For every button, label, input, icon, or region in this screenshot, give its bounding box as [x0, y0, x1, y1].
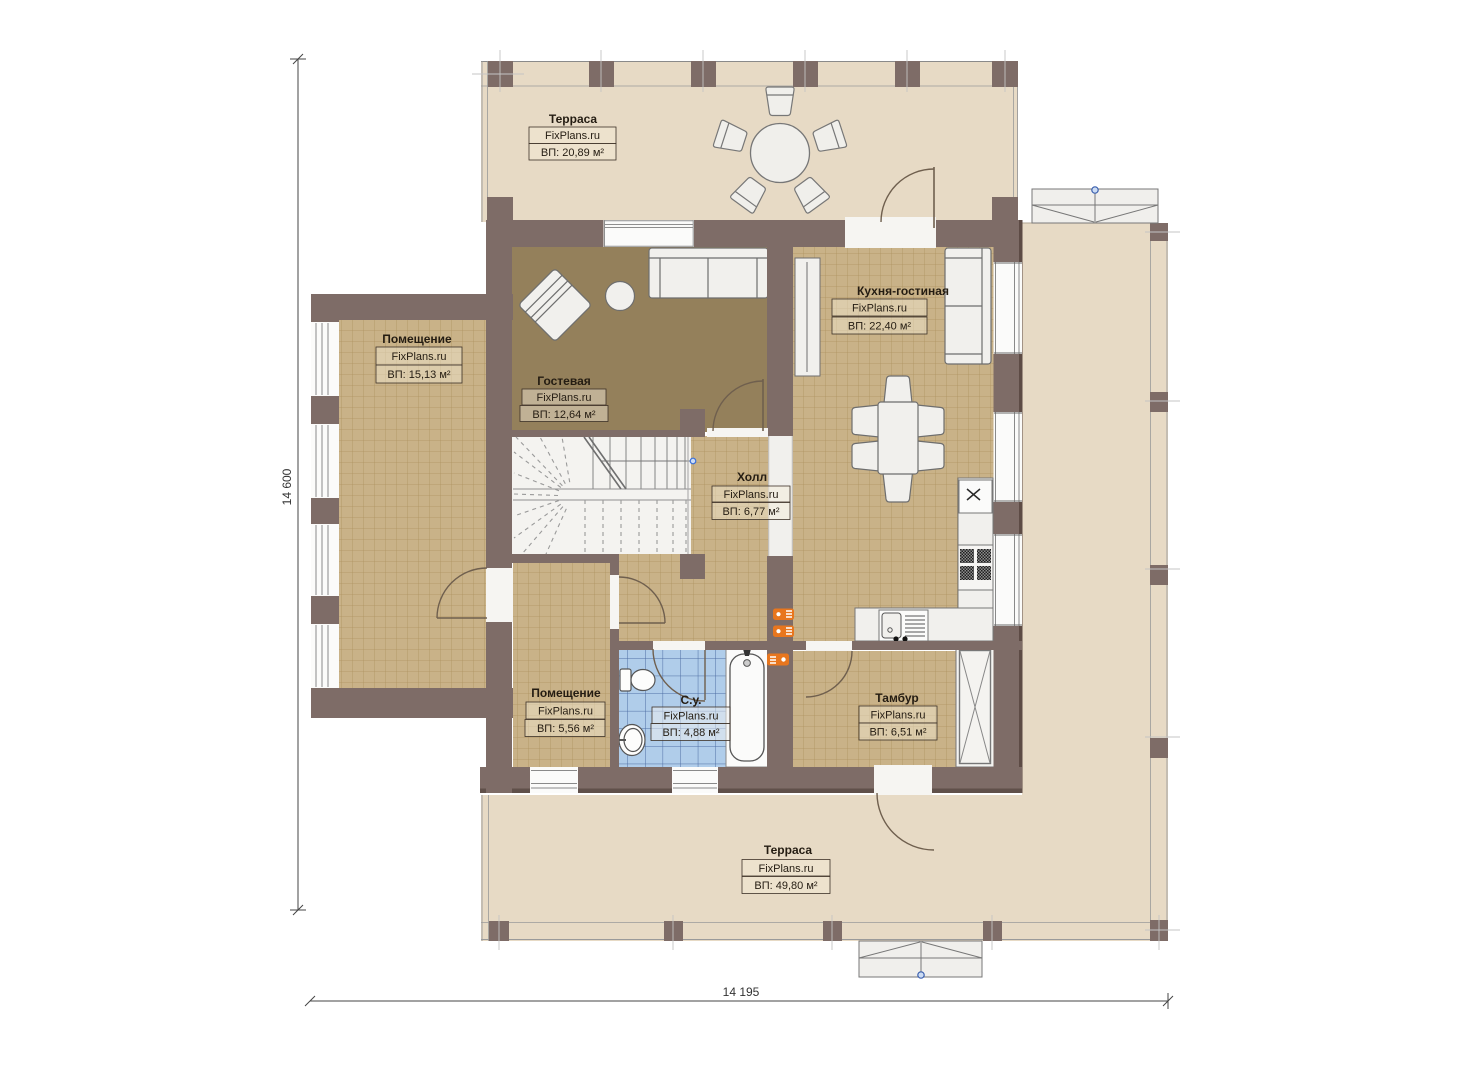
svg-text:ВП: 22,40 м²: ВП: 22,40 м² — [848, 321, 912, 333]
svg-text:14 600: 14 600 — [280, 468, 294, 505]
svg-text:ВП: 6,51 м²: ВП: 6,51 м² — [869, 727, 926, 739]
svg-text:FixPlans.ru: FixPlans.ru — [545, 130, 600, 142]
svg-text:ВП: 15,13 м²: ВП: 15,13 м² — [387, 369, 451, 381]
svg-text:FixPlans.ru: FixPlans.ru — [663, 711, 718, 723]
svg-text:FixPlans.ru: FixPlans.ru — [870, 710, 925, 722]
svg-text:ВП: 4,88 м²: ВП: 4,88 м² — [662, 727, 719, 739]
svg-text:14 195: 14 195 — [723, 985, 760, 999]
svg-text:Помещение: Помещение — [531, 686, 601, 700]
svg-text:FixPlans.ru: FixPlans.ru — [536, 392, 591, 404]
svg-text:ВП: 12,64 м²: ВП: 12,64 м² — [532, 409, 596, 421]
svg-text:FixPlans.ru: FixPlans.ru — [852, 303, 907, 315]
svg-text:ВП: 49,80 м²: ВП: 49,80 м² — [754, 880, 818, 892]
svg-text:ВП: 20,89 м²: ВП: 20,89 м² — [541, 147, 605, 159]
svg-text:С.у.: С.у. — [681, 693, 702, 707]
svg-text:FixPlans.ru: FixPlans.ru — [723, 489, 778, 501]
svg-text:Гостевая: Гостевая — [537, 374, 591, 388]
svg-text:FixPlans.ru: FixPlans.ru — [758, 863, 813, 875]
svg-text:Терраса: Терраса — [549, 112, 598, 126]
svg-text:ВП: 5,56 м²: ВП: 5,56 м² — [537, 723, 594, 735]
svg-text:FixPlans.ru: FixPlans.ru — [391, 351, 446, 363]
svg-text:Тамбур: Тамбур — [875, 691, 919, 705]
svg-text:Терраса: Терраса — [764, 843, 813, 857]
svg-text:Холл: Холл — [737, 470, 767, 484]
svg-text:Помещение: Помещение — [382, 332, 452, 346]
svg-text:FixPlans.ru: FixPlans.ru — [538, 706, 593, 718]
svg-text:Кухня-гостиная: Кухня-гостиная — [857, 284, 949, 298]
svg-text:ВП: 6,77 м²: ВП: 6,77 м² — [722, 506, 779, 518]
